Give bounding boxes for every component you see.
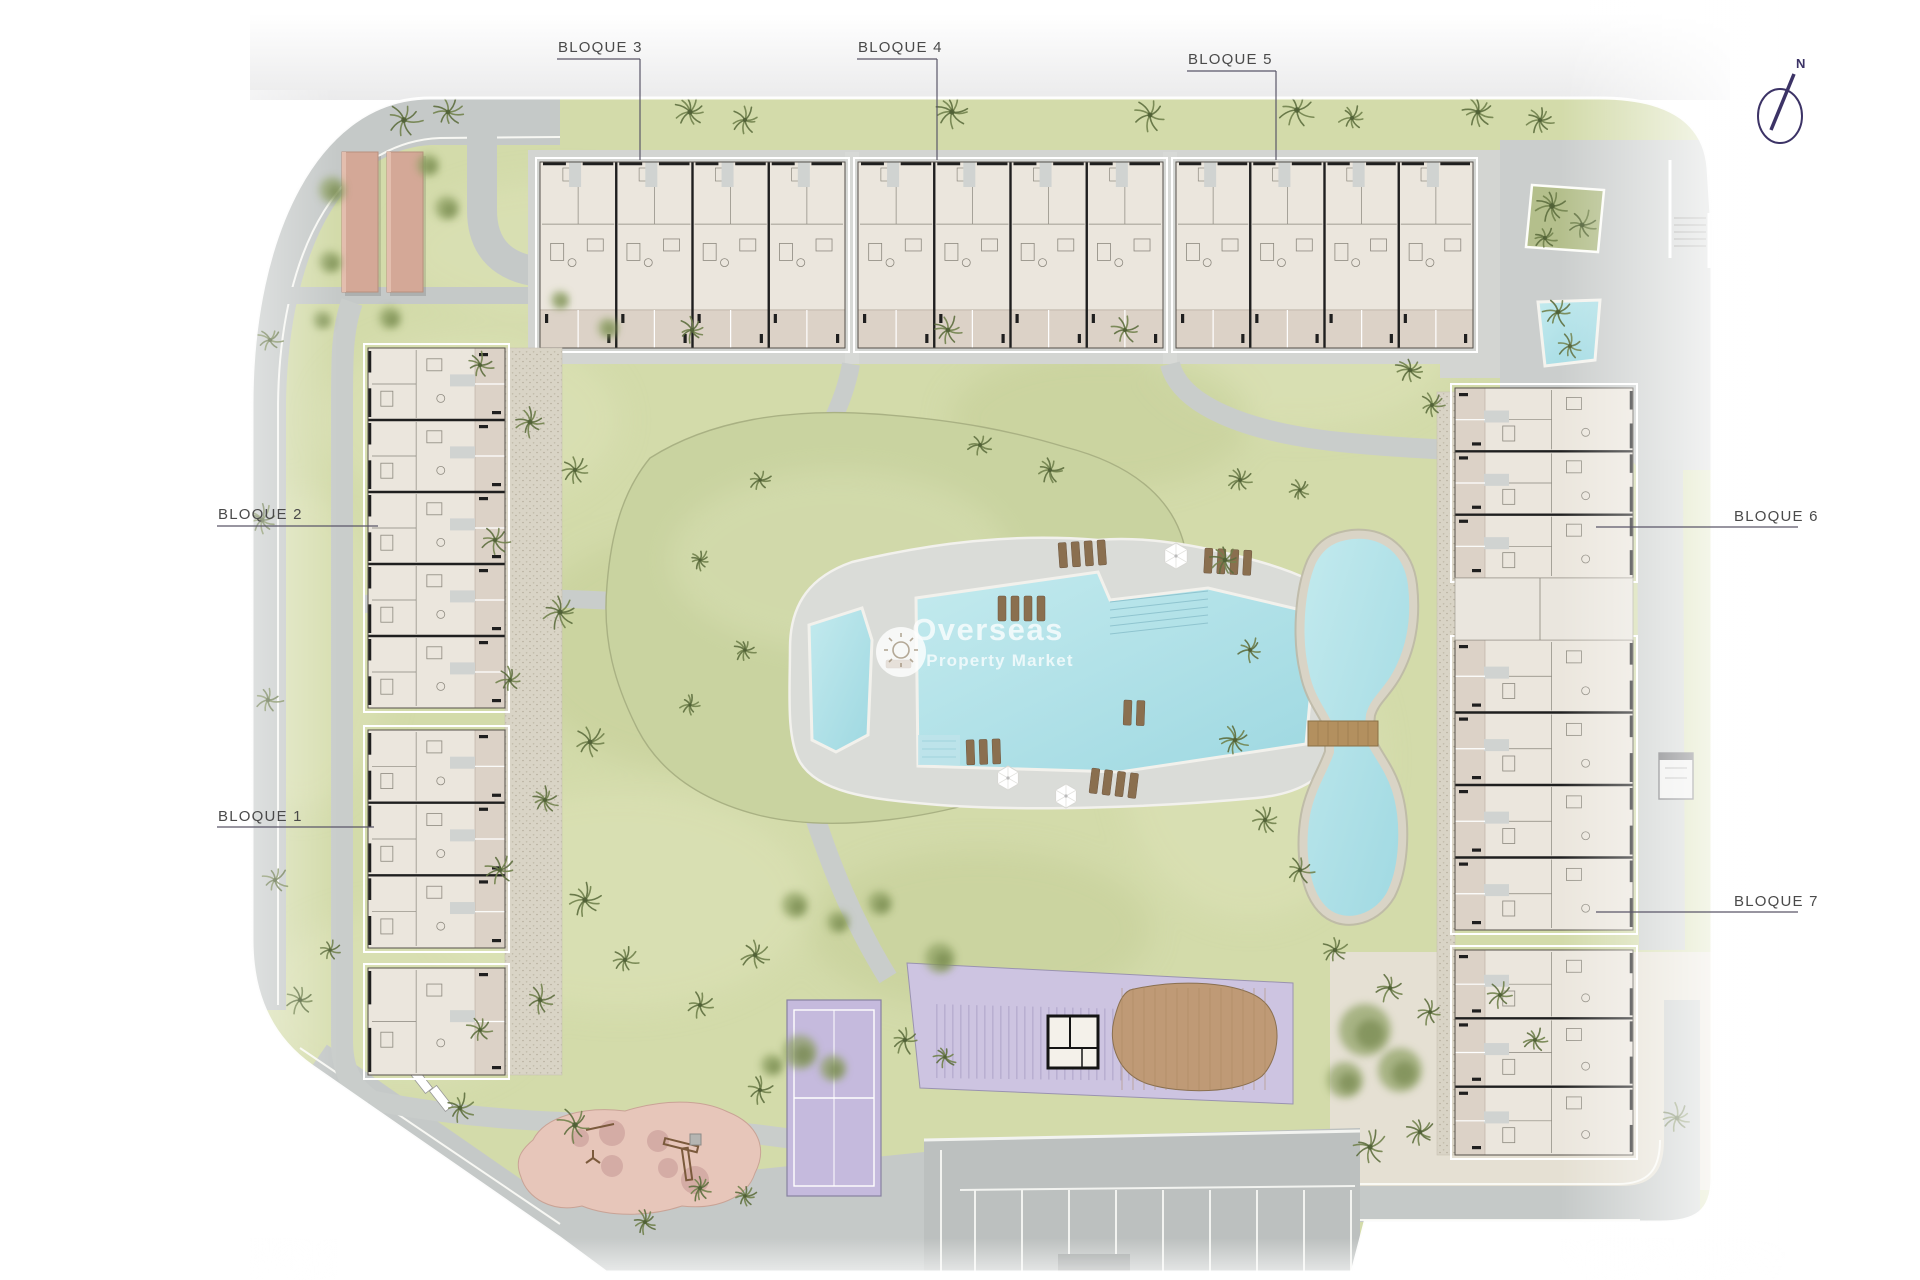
tennis-court [787,1000,881,1196]
lake-bridge [1308,721,1378,746]
block-label-text-bloque-4: BLOQUE 4 [858,39,943,56]
site-area [210,90,1720,1280]
building-bloque-1-lower [364,964,509,1079]
watermark-title: Overseas [912,612,1064,647]
bush-icon [1339,1004,1391,1056]
bush-icon [417,154,439,176]
block-label-text-bloque-6: BLOQUE 6 [1734,508,1819,525]
bush-icon [783,1035,817,1069]
petanque-area [1112,983,1277,1091]
block-label-text-bloque-2: BLOQUE 2 [218,506,303,523]
bush-icon [379,307,401,329]
bush-icon [435,196,459,220]
bush-icon [925,943,955,973]
block-label-text-bloque-3: BLOQUE 3 [558,39,643,56]
pool-house [1048,1016,1098,1068]
bush-icon [551,291,569,309]
site-layer [210,90,1720,1280]
site-plan-page: BLOQUE 3BLOQUE 4BLOQUE 5BLOQUE 2BLOQUE 1… [0,0,1920,1280]
bush-icon [868,891,892,915]
building-bloque-5 [1172,158,1477,352]
kids-pool [809,608,872,752]
main-pool [916,572,1318,772]
block-label-text-bloque-5: BLOQUE 5 [1188,51,1273,68]
bush-icon [598,318,618,338]
sun-loungers [966,739,1001,765]
site-plan-canvas: BLOQUE 3BLOQUE 4BLOQUE 5BLOQUE 2BLOQUE 1… [0,0,1920,1280]
block-label-text-bloque-7: BLOQUE 7 [1734,893,1819,910]
compass-north-label: N [1796,56,1805,71]
block-label-text-bloque-1: BLOQUE 1 [218,808,303,825]
watermark-subtitle: Property Market [926,651,1073,670]
bush-icon [827,911,849,933]
bush-icon [782,892,808,918]
building-bloque-1 [364,726,509,952]
bush-icon [1378,1048,1422,1092]
bush-icon [820,1055,846,1081]
bush-icon [761,1054,783,1076]
building-bloque-4 [854,158,1167,352]
bush-icon [1327,1062,1363,1098]
pool-area [789,538,1354,808]
